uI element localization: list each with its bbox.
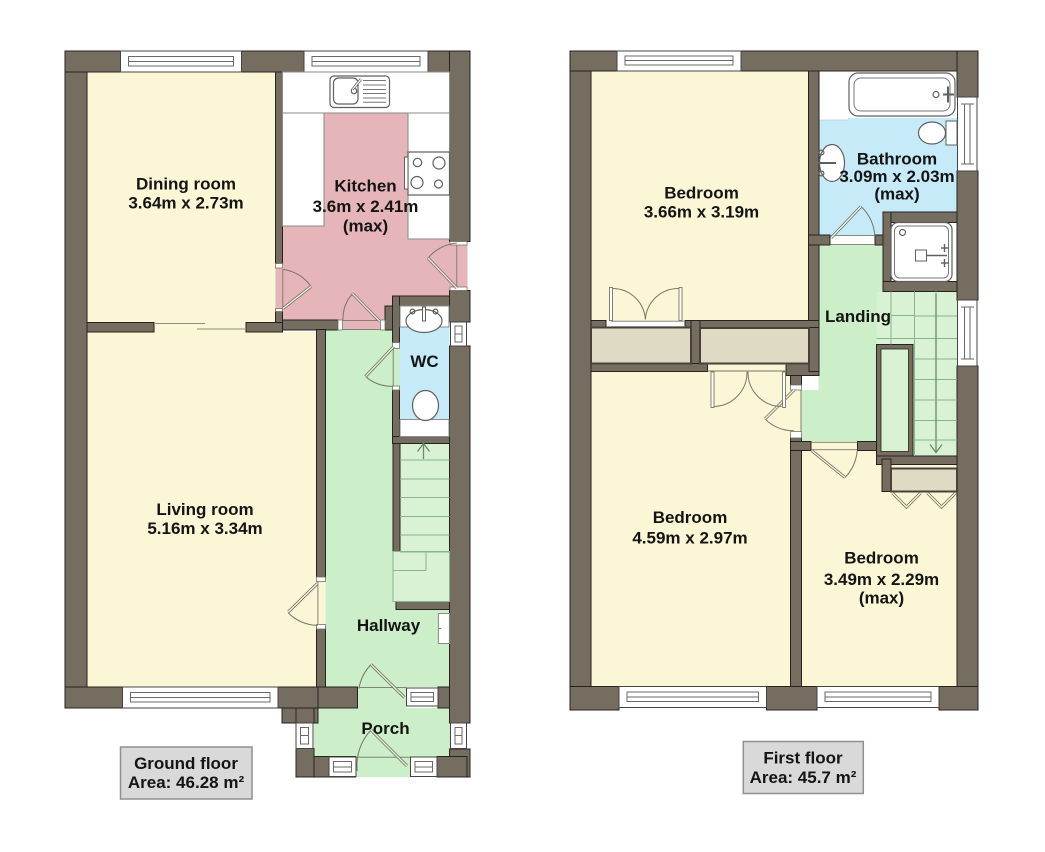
svg-text:Living room: Living room: [156, 500, 253, 519]
svg-text:Kitchen: Kitchen: [334, 177, 396, 196]
svg-text:Area: 45.7 m²: Area: 45.7 m²: [750, 768, 857, 787]
svg-text:Bathroom: Bathroom: [857, 150, 937, 169]
svg-text:Bedroom: Bedroom: [664, 184, 739, 203]
svg-text:Porch: Porch: [361, 719, 409, 738]
svg-text:Dining room: Dining room: [136, 175, 236, 194]
svg-text:Landing: Landing: [825, 307, 891, 326]
svg-text:(max): (max): [859, 589, 904, 608]
svg-text:Area: 46.28 m²: Area: 46.28 m²: [128, 773, 245, 792]
svg-text:WC: WC: [410, 352, 438, 371]
svg-text:3.66m x 3.19m: 3.66m x 3.19m: [644, 203, 759, 222]
svg-text:Bedroom: Bedroom: [844, 549, 919, 568]
svg-text:5.16m x 3.34m: 5.16m x 3.34m: [147, 519, 262, 538]
svg-text:3.6m x 2.41m: 3.6m x 2.41m: [313, 197, 419, 216]
svg-text:Bedroom: Bedroom: [653, 508, 728, 527]
svg-text:First floor: First floor: [763, 749, 843, 768]
svg-text:Hallway: Hallway: [357, 616, 421, 635]
svg-text:4.59m x 2.97m: 4.59m x 2.97m: [632, 529, 747, 548]
svg-text:Ground floor: Ground floor: [134, 754, 238, 773]
svg-text:(max): (max): [874, 185, 919, 204]
svg-text:3.49m x 2.29m: 3.49m x 2.29m: [824, 570, 939, 589]
svg-text:3.09m x 2.03m: 3.09m x 2.03m: [839, 167, 954, 186]
svg-text:3.64m x 2.73m: 3.64m x 2.73m: [128, 194, 243, 213]
svg-text:(max): (max): [343, 217, 388, 236]
